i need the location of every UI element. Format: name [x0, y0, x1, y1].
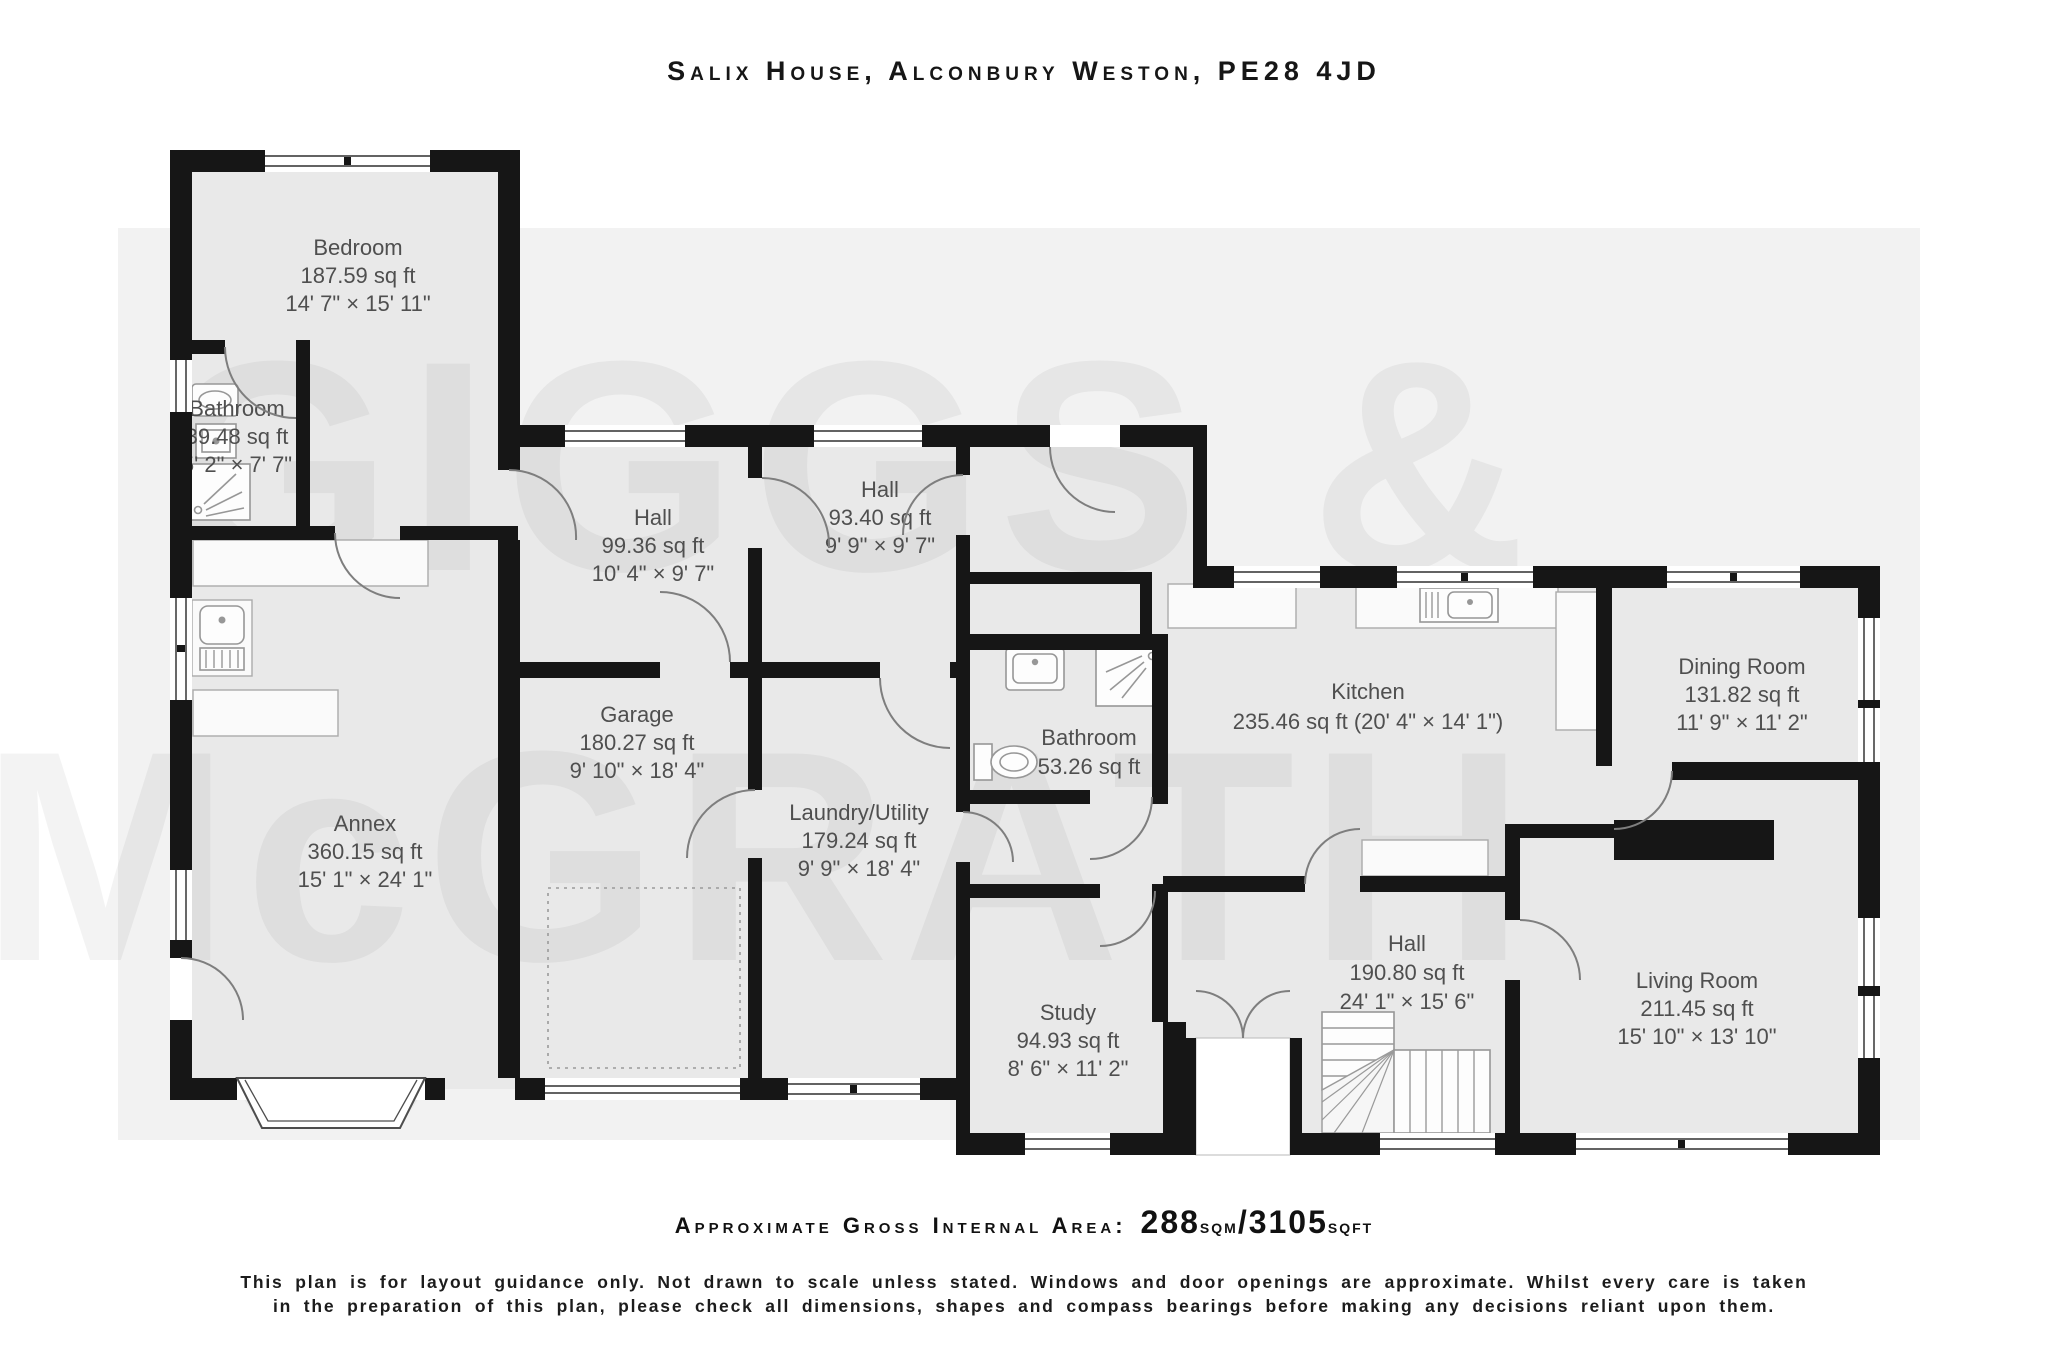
window — [1234, 566, 1320, 588]
room-dining: Dining Room 131.82 sq ft 11' 9" × 11' 2" — [1676, 654, 1807, 735]
counter — [1362, 840, 1488, 876]
room-name-label: Bathroom — [189, 396, 284, 421]
porch-recess — [1196, 1038, 1290, 1155]
window — [1025, 1133, 1110, 1155]
window — [170, 870, 192, 940]
room-area-label: 53.26 sq ft — [1038, 754, 1141, 779]
room-area-label: 235.46 sq ft (20' 4" × 14' 1") — [1233, 709, 1503, 734]
room-dims-label: 24' 1" × 15' 6" — [1340, 989, 1475, 1014]
counter — [193, 540, 428, 586]
bay-window — [237, 1078, 425, 1128]
kitchenette-sink-symbol — [192, 600, 252, 676]
disclaimer-line-2: in the preparation of this plan, please … — [0, 1296, 2048, 1317]
room-dims-label: 14' 7" × 15' 11" — [285, 291, 430, 316]
garage-door — [545, 1078, 740, 1100]
room-area-label: 39.48 sq ft — [186, 424, 289, 449]
room-living: Living Room 211.45 sq ft 15' 10" × 13' 1… — [1617, 968, 1776, 1049]
window — [1858, 708, 1880, 762]
toilet-symbol — [974, 744, 1037, 780]
gross-area-line: Approximate Gross Internal Area:288sqm/3… — [0, 1204, 2048, 1241]
window — [170, 360, 192, 412]
room-area-label: 190.80 sq ft — [1350, 960, 1465, 985]
window — [1858, 918, 1880, 986]
area-sqft-value: 3105 — [1249, 1204, 1328, 1240]
kitchen-sink-symbol — [1420, 588, 1498, 622]
room-name-label: Living Room — [1636, 968, 1758, 993]
room-name-label: Bedroom — [313, 235, 402, 260]
window — [788, 1078, 920, 1100]
room-name-label: Garage — [600, 702, 673, 727]
front-door-opening — [1050, 425, 1120, 447]
room-dims-label: 15' 10" × 13' 10" — [1617, 1024, 1776, 1049]
room-area-label: 187.59 sq ft — [301, 263, 416, 288]
room-area-label: 94.93 sq ft — [1017, 1028, 1120, 1053]
area-sqm-value: 288 — [1141, 1204, 1200, 1240]
room-dims-label: 8' 6" × 11' 2" — [1008, 1056, 1129, 1081]
room-laundry: Laundry/Utility 179.24 sq ft 9' 9" × 18'… — [789, 800, 928, 881]
window — [1576, 1133, 1788, 1155]
room-name-label: Kitchen — [1331, 679, 1404, 704]
window — [1858, 618, 1880, 700]
room-name-label: Bathroom — [1041, 725, 1136, 750]
window — [1858, 996, 1880, 1058]
room-area-label: 131.82 sq ft — [1685, 682, 1800, 707]
window — [1667, 566, 1800, 588]
chimney-breast — [1614, 820, 1774, 860]
area-sqft-unit: sqft — [1328, 1216, 1373, 1238]
room-name-label: Annex — [334, 811, 396, 836]
room-area-label: 179.24 sq ft — [802, 828, 917, 853]
room-area-label: 180.27 sq ft — [580, 730, 695, 755]
counter — [1168, 584, 1296, 628]
window — [265, 150, 430, 172]
window — [1397, 566, 1533, 588]
area-separator: / — [1238, 1204, 1249, 1240]
room-name-label: Hall — [861, 477, 899, 502]
window — [565, 425, 685, 447]
room-dims-label: 5' 2" × 7' 7" — [182, 452, 292, 477]
window — [814, 425, 922, 447]
room-name-label: Hall — [634, 505, 672, 530]
room-area-label: 93.40 sq ft — [829, 505, 932, 530]
floorplan-page: Salix House, Alconbury Weston, PE28 4JD … — [0, 0, 2048, 1365]
window — [1380, 1133, 1495, 1155]
room-dims-label: 10' 4" × 9' 7" — [592, 561, 715, 586]
side-door-opening — [170, 958, 192, 1020]
room-name-label: Laundry/Utility — [789, 800, 928, 825]
room-name-label: Hall — [1388, 931, 1426, 956]
counter — [193, 690, 338, 736]
window — [170, 598, 192, 700]
sink-symbol — [1006, 648, 1064, 690]
disclaimer-line-1: This plan is for layout guidance only. N… — [0, 1272, 2048, 1293]
room-area-label: 99.36 sq ft — [602, 533, 705, 558]
room-dims-label: 15' 1" × 24' 1" — [298, 867, 433, 892]
room-dims-label: 11' 9" × 11' 2" — [1676, 710, 1807, 735]
gross-area-label: Approximate Gross Internal Area: — [675, 1213, 1127, 1238]
room-name-label: Study — [1040, 1000, 1096, 1025]
room-area-label: 360.15 sq ft — [308, 839, 423, 864]
tall-unit — [1556, 592, 1598, 730]
room-dims-label: 9' 10" × 18' 4" — [570, 758, 705, 783]
floor-plan-svg: GIGGS & McGRATH — [0, 0, 2048, 1365]
room-bathroom-annex: Bathroom 39.48 sq ft 5' 2" × 7' 7" — [182, 396, 292, 477]
room-area-label: 211.45 sq ft — [1640, 996, 1753, 1021]
room-name-label: Dining Room — [1678, 654, 1805, 679]
area-sqm-unit: sqm — [1200, 1216, 1238, 1238]
watermark-line2: McGRATH — [0, 688, 1540, 1024]
room-dims-label: 9' 9" × 18' 4" — [798, 856, 921, 881]
room-dims-label: 9' 9" × 9' 7" — [825, 533, 935, 558]
